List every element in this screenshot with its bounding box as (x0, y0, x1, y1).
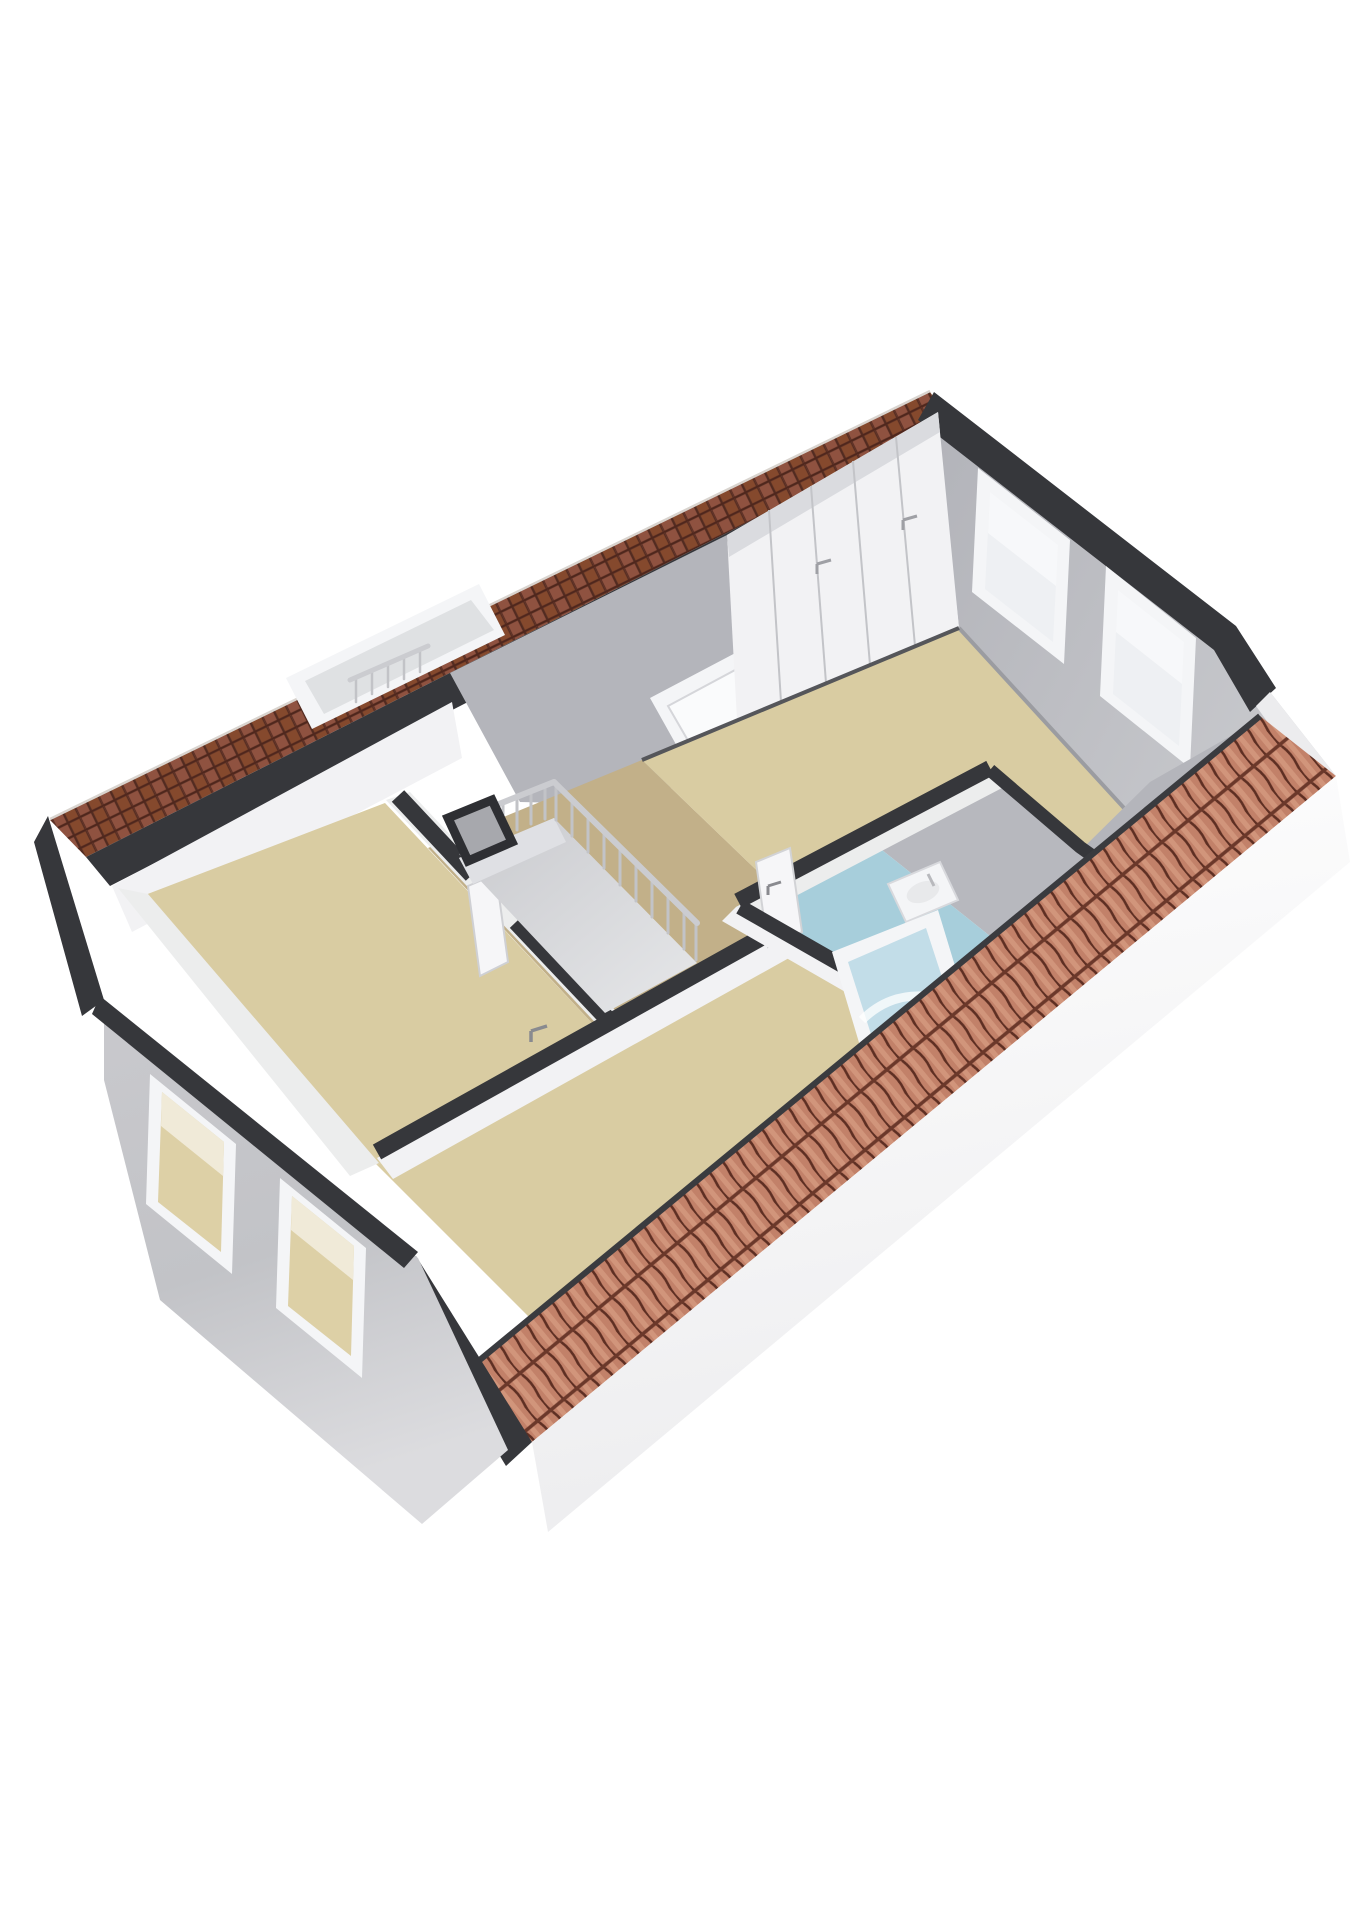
floorplan-3d-render (0, 0, 1358, 1920)
floorplan-canvas (0, 0, 1358, 1920)
